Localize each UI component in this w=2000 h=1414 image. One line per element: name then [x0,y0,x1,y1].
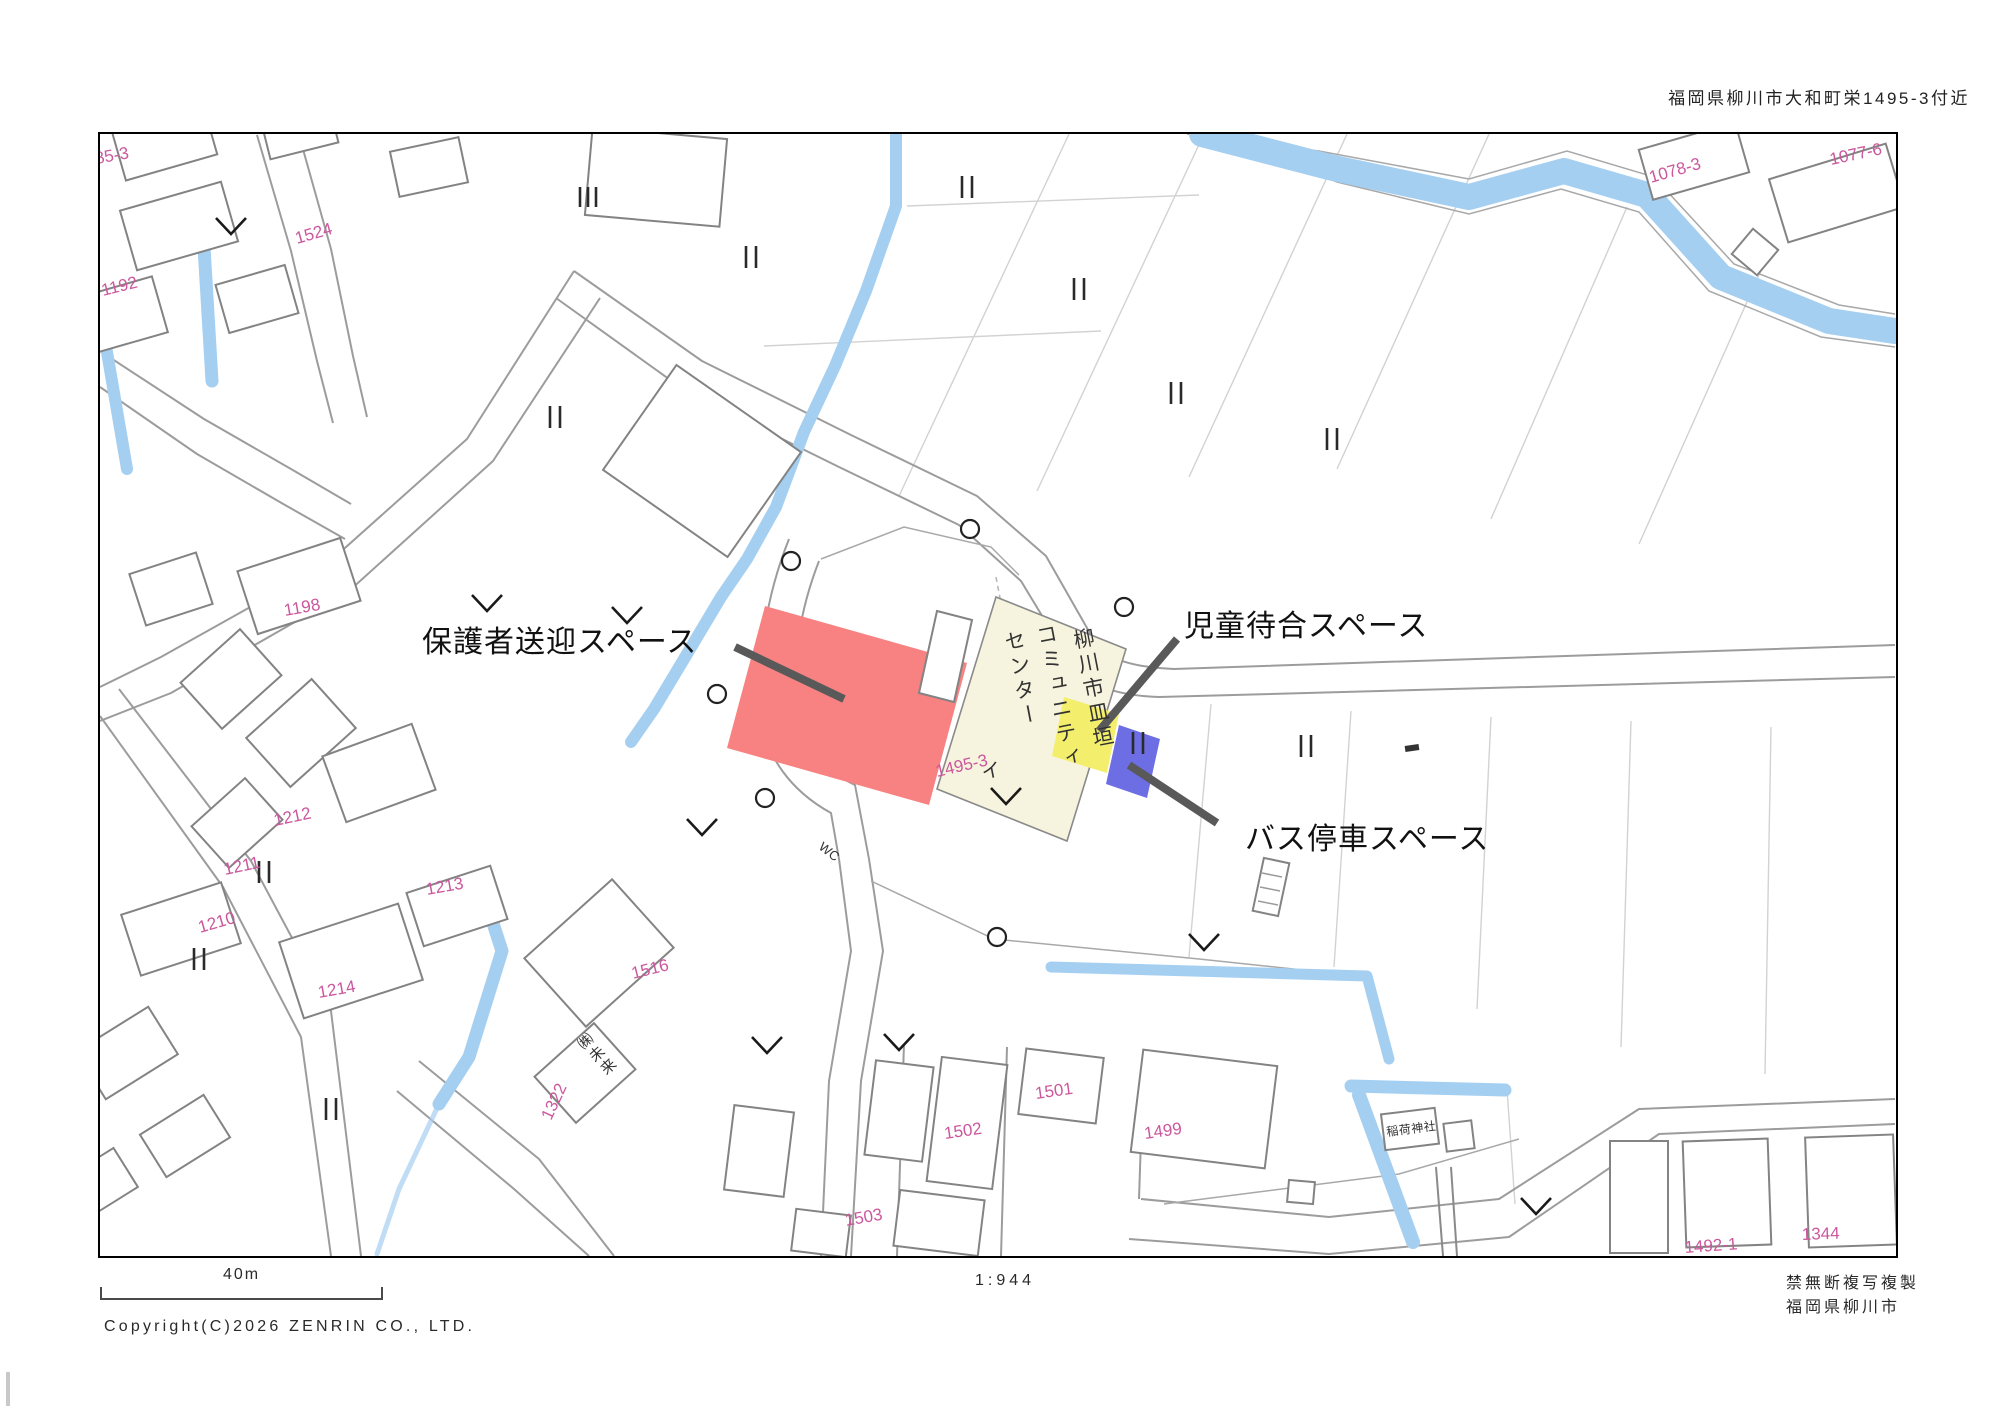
bus-parking-label: バス停車スペース [1245,823,1489,856]
notice-line-1: 禁無断複写複製 [1786,1272,1919,1296]
scale-bar [100,1287,383,1300]
scale-ratio-label: 1:944 [975,1272,1035,1290]
zenrin-map-page: 福岡県柳川市大和町栄1495-3付近 [0,0,2000,1414]
block-mark-label: イ [980,760,1003,784]
svg-text:1344: 1344 [1801,1224,1839,1244]
notice-line-2: 福岡県柳川市 [1786,1296,1919,1320]
svg-text:1524: 1524 [293,219,335,248]
guardian-pickup-label: 保護者送迎スペース [422,626,697,659]
map-drawing: 85-3 1524 1192 1198 1212 1211 1210 1213 … [100,134,1896,1256]
map-canvas: 85-3 1524 1192 1198 1212 1211 1210 1213 … [98,132,1898,1258]
reproduction-notice: 禁無断複写複製 福岡県柳川市 [1786,1272,1919,1320]
svg-text:1492-1: 1492-1 [1684,1234,1738,1256]
scale-distance-label: 40m [100,1266,383,1284]
gate-mark [1405,744,1420,752]
children-waiting-label: 児童待合スペース [1184,610,1428,643]
svg-text:1503: 1503 [843,1205,884,1230]
copyright-label: Copyright(C)2026 ZENRIN CO., LTD. [104,1318,475,1336]
edge-micro-text [6,1372,10,1406]
svg-text:1212: 1212 [272,803,313,829]
map-location-title: 福岡県柳川市大和町栄1495-3付近 [1668,84,1970,109]
small-annex-building [919,611,972,702]
